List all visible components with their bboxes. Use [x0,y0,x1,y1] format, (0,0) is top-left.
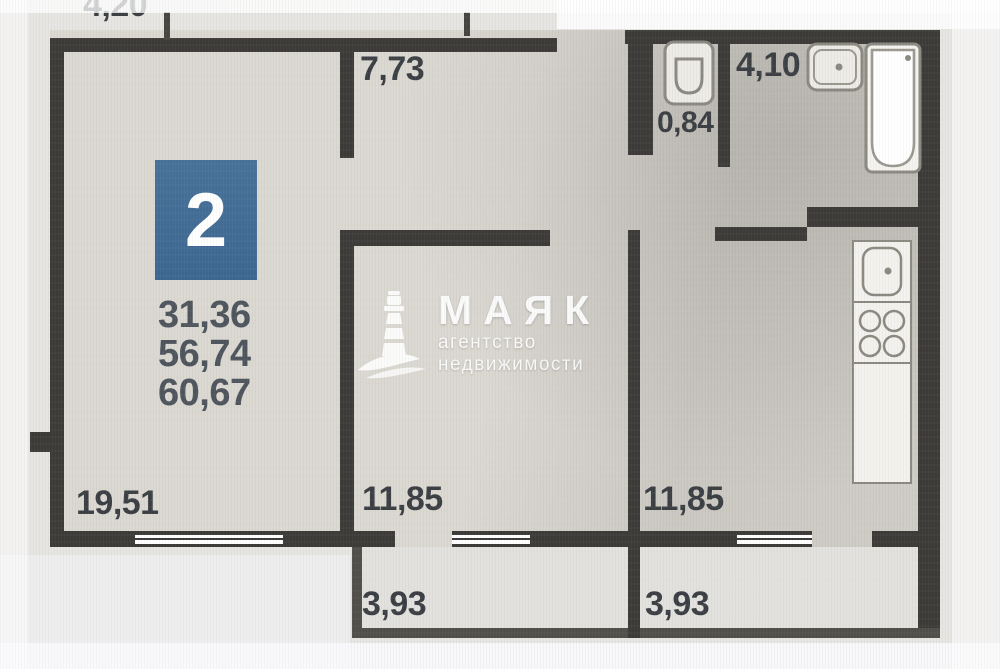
room-label-hallway: 7,73 [360,50,424,89]
wall-kitchen-left [628,230,640,531]
wall-left [50,38,64,547]
wall-left-tab [30,432,50,452]
wall-top-left [50,38,557,52]
wall-bottom-seg5 [872,531,940,547]
kitchen-unit-icon [852,240,912,489]
wall-bath-bottom-low [715,227,807,241]
wall-bottom-seg1 [50,531,135,547]
dimension-label-top: 4,20 [83,0,147,25]
wall-bottom-seg2 [283,531,395,547]
room-label-kitchen: 11,85 [643,480,724,519]
rooms-count-badge: 2 [155,160,257,280]
toilet-icon [663,40,715,111]
wall-living-divider-upper [340,38,354,158]
room-label-bedroom: 11,85 [362,480,443,519]
wall-balcony-divider [628,547,640,638]
wall-bedroom-top [340,230,550,246]
glare-top [0,0,1000,13]
room-label-bathroom: 4,10 [736,46,800,85]
bathtub-icon [864,42,922,179]
wall-bottom-seg4 [640,531,737,547]
room-label-living-room: 19,51 [76,484,159,523]
area-value-living: 31,36 [158,296,251,335]
wall-balcony-bottom [352,628,940,638]
room-label-balcony-right: 3,93 [645,585,709,624]
window-living-room [135,531,283,547]
glare-right [952,0,1000,669]
glare-left [0,0,28,669]
window-bedroom [452,531,530,547]
glare-top-right [557,0,1000,29]
area-value-secondary: 56,74 [158,335,251,374]
wall-bath-bottom-high [807,207,925,227]
wall-wc-bath-divider [718,30,730,167]
glare-bottom [0,643,1000,669]
wall-balcony-left [352,547,362,628]
dimension-tick-left [164,12,170,40]
apartment-floor [50,30,940,547]
glare-bottom-left [0,555,350,669]
dimension-tick-right [464,12,470,36]
room-label-balcony-left: 3,93 [362,585,426,624]
wall-bottom-seg3 [530,531,640,547]
sink-icon [806,42,864,97]
floor-plan-photo: 4,20 7,73 0,84 4,10 19,51 11,85 11,85 3,… [0,0,1000,669]
area-value-total: 60,67 [158,374,251,413]
wall-wc-left [628,30,653,155]
window-kitchen [737,531,812,547]
rooms-count-value: 2 [185,177,227,264]
area-values-list: 31,36 56,74 60,67 [158,296,251,413]
wall-living-divider-lower [340,230,354,531]
room-label-wc: 0,84 [657,106,713,140]
